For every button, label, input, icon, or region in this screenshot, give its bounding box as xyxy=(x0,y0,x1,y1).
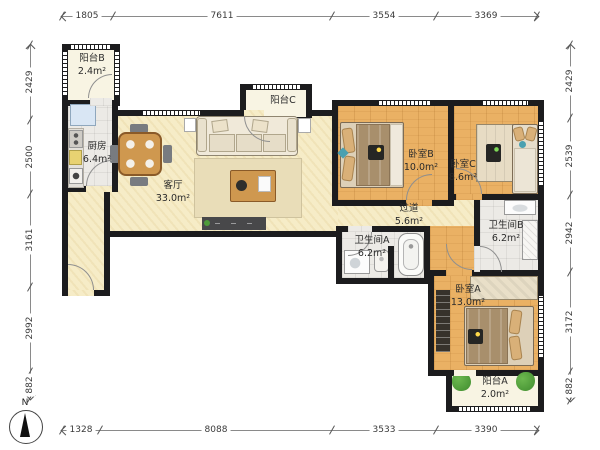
dim-label-left-4: 2992 xyxy=(25,314,35,343)
room-label-living: 客厅 33.0m² xyxy=(156,179,190,205)
dining-chair xyxy=(163,145,172,163)
dim-line-left xyxy=(30,45,31,398)
dim-label-right-1: 2429 xyxy=(565,67,575,96)
room-label-hallway: 过道 5.6m² xyxy=(395,202,423,228)
dim-arrow xyxy=(26,44,36,54)
window-balcony-a-bottom xyxy=(458,406,530,412)
dim-label-bottom-1: 1328 xyxy=(67,425,96,435)
wardrobe-c-panel xyxy=(486,144,501,162)
room-label-bedroom-a: 卧室A 13.0m² xyxy=(451,283,485,309)
compass-needle-icon xyxy=(20,413,30,437)
window-balcony-b-left xyxy=(62,52,68,96)
dim-label-bottom-4: 3390 xyxy=(472,425,501,435)
dim-line-top xyxy=(62,16,538,17)
room-label-bathroom-b: 卫生间B 6.2m² xyxy=(488,219,523,245)
sofa-armrest xyxy=(197,118,207,152)
bed-b-foot xyxy=(390,124,403,186)
dim-line-bottom xyxy=(62,430,538,431)
dim-label-bottom-2: 8088 xyxy=(202,425,231,435)
room-name: 卧室C xyxy=(449,158,477,171)
room-label-balcony-b: 阳台B 2.4m² xyxy=(78,52,106,78)
room-name: 阳台A xyxy=(481,375,509,388)
dining-chair xyxy=(130,177,148,186)
room-area: 13.0m² xyxy=(451,296,485,309)
window-balcony-b-right xyxy=(114,52,120,96)
fridge xyxy=(70,104,96,126)
room-label-balcony-a: 阳台A 2.0m² xyxy=(481,375,509,401)
tv-cabinet-plant xyxy=(204,220,210,226)
dim-label-top-4: 3369 xyxy=(472,11,501,21)
room-name: 卫生间A xyxy=(355,234,390,247)
side-table xyxy=(184,118,196,132)
dim-label-left-2: 2500 xyxy=(25,143,35,172)
door-gap-kitchen xyxy=(86,186,112,192)
table-item xyxy=(258,176,271,192)
dim-label-right-4: 3172 xyxy=(565,308,575,337)
dim-label-left-5: 882 xyxy=(25,373,35,396)
kitchen-sink xyxy=(69,168,83,184)
room-area: 2.0m² xyxy=(481,388,509,401)
door-gap-balcony-b xyxy=(90,98,112,106)
dim-label-bottom-3: 3533 xyxy=(370,425,399,435)
room-name: 阳台C xyxy=(270,94,296,107)
room-name: 卧室B xyxy=(404,148,438,161)
room-area: 5.6m² xyxy=(395,215,423,228)
sofa-cushion xyxy=(209,134,235,152)
bed-b-tv xyxy=(368,145,384,160)
dim-arrow xyxy=(61,12,71,22)
bed-a-tv xyxy=(468,329,483,344)
stove xyxy=(69,130,83,148)
sofa-armrest xyxy=(287,118,297,152)
room-area: 6.4m² xyxy=(83,153,111,166)
room-label-bedroom-c: 卧室C 8.6m² xyxy=(449,158,477,184)
compass-north-label: N xyxy=(22,398,29,408)
dim-label-left-1: 2429 xyxy=(25,68,35,97)
dim-label-top-2: 7611 xyxy=(208,11,237,21)
door-gap-entry xyxy=(68,290,94,296)
room-area: 6.2m² xyxy=(355,247,390,260)
dim-arrow xyxy=(566,44,576,54)
wardrobe-a xyxy=(436,290,450,352)
room-label-balcony-c: 阳台C xyxy=(270,94,296,107)
room-area: 2.4m² xyxy=(78,65,106,78)
window-balcony-b-top xyxy=(70,44,110,50)
window-bedroom-c-top xyxy=(482,100,528,106)
dim-label-left-3: 3161 xyxy=(25,226,35,255)
bed-c-blanket xyxy=(514,148,536,192)
room-name: 厨房 xyxy=(83,140,111,153)
dim-label-right-5: 882 xyxy=(565,374,575,397)
room-area: 6.2m² xyxy=(488,232,523,245)
dim-label-right-2: 2539 xyxy=(565,142,575,171)
side-table xyxy=(298,118,311,133)
window-living-top xyxy=(142,110,200,116)
room-label-bathroom-a: 卫生间A 6.2m² xyxy=(355,234,390,260)
room-label-bedroom-b: 卧室B 10.0m² xyxy=(404,148,438,174)
floorplan-canvas: 1805 7611 3554 3369 1328 8088 3533 3390 … xyxy=(0,0,600,450)
room-area: 8.6m² xyxy=(449,171,477,184)
dining-table xyxy=(118,132,162,176)
window-bedroom-a-right xyxy=(538,296,544,358)
sink-b xyxy=(504,200,536,215)
tv-cabinet xyxy=(202,217,266,230)
kitchen-cabinet xyxy=(69,150,82,165)
dim-label-top-3: 3554 xyxy=(370,11,399,21)
kettle xyxy=(236,180,247,191)
shower-b xyxy=(522,220,538,260)
window-balcony-c-top xyxy=(252,84,300,90)
door-gap-bedroom-c xyxy=(456,194,482,200)
room-name: 卫生间B xyxy=(488,219,523,232)
bathtub-basin xyxy=(403,239,419,270)
room-label-kitchen: 厨房 6.4m² xyxy=(83,140,111,166)
sofa-pillow xyxy=(211,119,229,133)
room-name: 过道 xyxy=(395,202,423,215)
window-bedroom-c-right xyxy=(538,122,544,186)
door-gap-bedroom-a xyxy=(446,270,472,276)
dim-label-top-1: 1805 xyxy=(73,11,102,21)
door-gap-balcony-a xyxy=(454,370,476,376)
room-area: 10.0m² xyxy=(404,161,438,174)
room-area: 33.0m² xyxy=(156,192,190,205)
room-name: 客厅 xyxy=(156,179,190,192)
dim-label-right-3: 2942 xyxy=(565,219,575,248)
window-bedroom-b-top xyxy=(378,100,430,106)
room-name: 卧室A xyxy=(451,283,485,296)
bed-c-accent xyxy=(519,141,526,148)
room-name: 阳台B xyxy=(78,52,106,65)
